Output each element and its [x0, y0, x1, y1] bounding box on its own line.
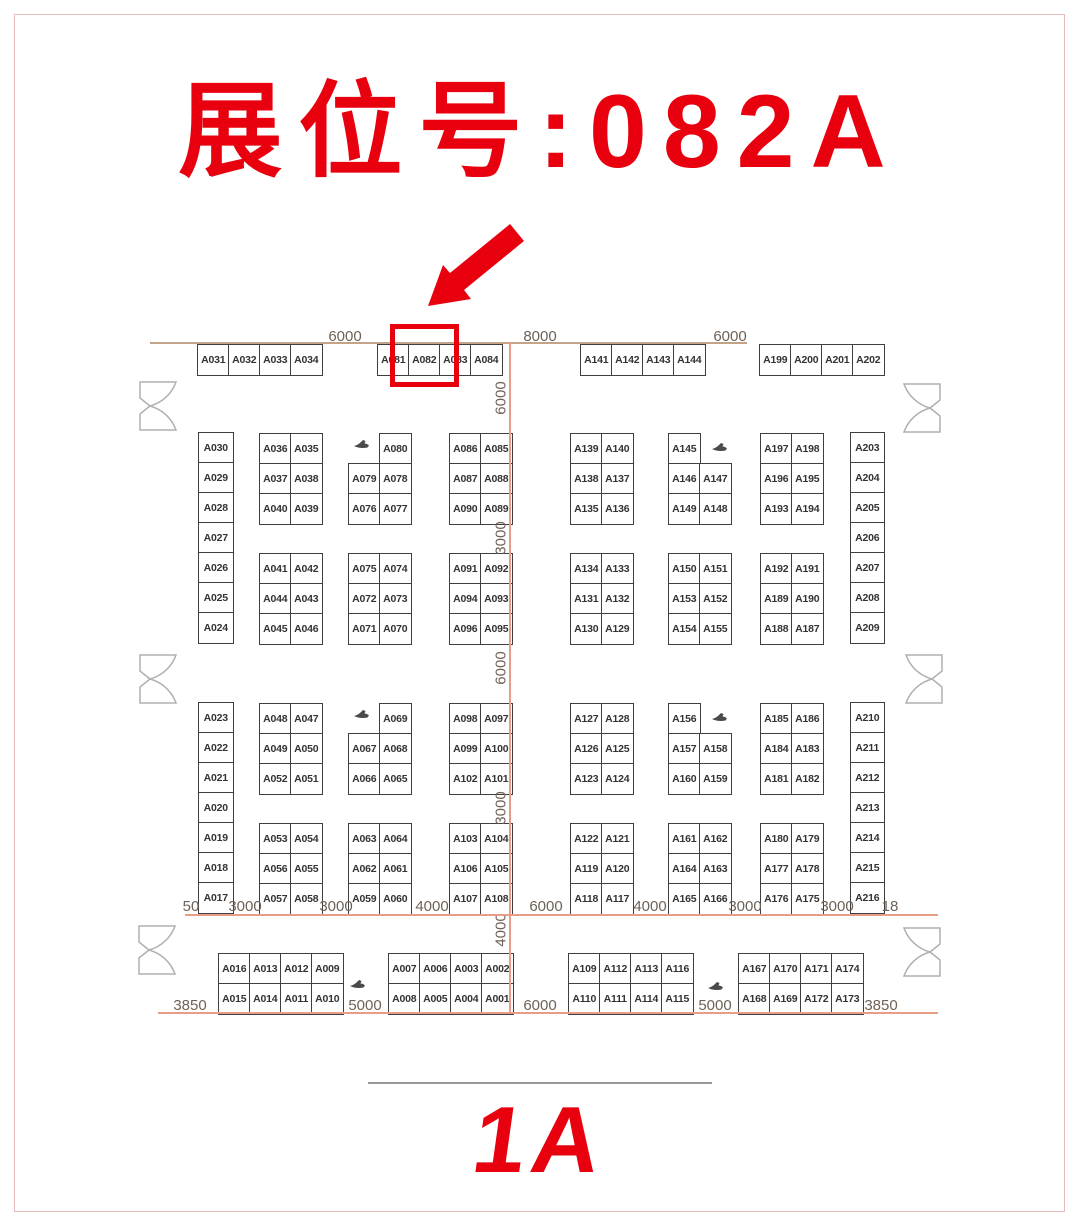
booth-A042: A042 — [290, 553, 323, 585]
car-icon — [707, 981, 724, 991]
booth-A093: A093 — [480, 583, 513, 615]
booth-A012: A012 — [280, 953, 313, 985]
booth-A027: A027 — [198, 522, 234, 554]
booth-A183: A183 — [791, 733, 824, 765]
booth-A110: A110 — [568, 983, 601, 1015]
car-icon — [353, 439, 370, 449]
booth-A191: A191 — [791, 553, 824, 585]
booth-A021: A021 — [198, 762, 234, 794]
booth-A053: A053 — [259, 823, 292, 855]
center-axis-line — [509, 342, 511, 1013]
booth-A105: A105 — [480, 853, 513, 885]
booth-A201: A201 — [821, 344, 854, 376]
booth-A172: A172 — [800, 983, 833, 1015]
booth-A122: A122 — [570, 823, 603, 855]
booth-A159: A159 — [699, 763, 732, 795]
floor-plan: A031A032A033A034A081A082A083A084A141A142… — [0, 0, 1080, 1226]
booth-A188: A188 — [760, 613, 793, 645]
dimension-label-vertical: 6000 — [493, 358, 510, 438]
booth-A193: A193 — [760, 493, 793, 525]
booth-A032: A032 — [228, 344, 261, 376]
booth-A023: A023 — [198, 702, 234, 734]
booth-A216: A216 — [850, 882, 885, 914]
booth-A184: A184 — [760, 733, 793, 765]
booth-A037: A037 — [259, 463, 292, 495]
booth-A190: A190 — [791, 583, 824, 615]
booth-A144: A144 — [673, 344, 706, 376]
booth-A009: A009 — [311, 953, 344, 985]
booth-A207: A207 — [850, 552, 885, 584]
booth-A087: A087 — [449, 463, 482, 495]
booth-A165: A165 — [668, 883, 701, 915]
booth-A168: A168 — [738, 983, 771, 1015]
booth-A206: A206 — [850, 522, 885, 554]
exhibition-floor-plan-page: 展位号:082A A031A032A033A034A081A082A083A08… — [0, 0, 1080, 1226]
booth-A115: A115 — [661, 983, 694, 1015]
dimension-label-vertical: 4000 — [493, 890, 510, 970]
booth-A148: A148 — [699, 493, 732, 525]
booth-A008: A008 — [388, 983, 421, 1015]
booth-A164: A164 — [668, 853, 701, 885]
booth-A010: A010 — [311, 983, 344, 1015]
booth-A208: A208 — [850, 582, 885, 614]
booth-A175: A175 — [791, 883, 824, 915]
booth-A077: A077 — [379, 493, 412, 525]
booth-A013: A013 — [249, 953, 282, 985]
dimension-label: 18 — [882, 898, 899, 915]
booth-A060: A060 — [379, 883, 412, 915]
booth-A185: A185 — [760, 703, 793, 735]
booth-A137: A137 — [601, 463, 634, 495]
booth-A128: A128 — [601, 703, 634, 735]
door-icon — [136, 381, 178, 431]
booth-A147: A147 — [699, 463, 732, 495]
booth-A107: A107 — [449, 883, 482, 915]
booth-A124: A124 — [601, 763, 634, 795]
booth-A146: A146 — [668, 463, 701, 495]
booth-A161: A161 — [668, 823, 701, 855]
dimension-label-vertical: 6000 — [493, 628, 510, 708]
booth-A035: A035 — [290, 433, 323, 465]
booth-A025: A025 — [198, 582, 234, 614]
booth-A166: A166 — [699, 883, 732, 915]
hall-name-text: 1A — [466, 1086, 613, 1194]
booth-A195: A195 — [791, 463, 824, 495]
booth-A126: A126 — [570, 733, 603, 765]
booth-A022: A022 — [198, 732, 234, 764]
booth-A018: A018 — [198, 852, 234, 884]
booth-A119: A119 — [570, 853, 603, 885]
booth-A076: A076 — [348, 493, 381, 525]
booth-A198: A198 — [791, 433, 824, 465]
booth-A005: A005 — [419, 983, 452, 1015]
booth-A049: A049 — [259, 733, 292, 765]
booth-A189: A189 — [760, 583, 793, 615]
booth-A061: A061 — [379, 853, 412, 885]
booth-A123: A123 — [570, 763, 603, 795]
booth-A036: A036 — [259, 433, 292, 465]
booth-A134: A134 — [570, 553, 603, 585]
booth-A205: A205 — [850, 492, 885, 524]
booth-A033: A033 — [259, 344, 292, 376]
booth-A180: A180 — [760, 823, 793, 855]
booth-A196: A196 — [760, 463, 793, 495]
booth-A059: A059 — [348, 883, 381, 915]
booth-A094: A094 — [449, 583, 482, 615]
booth-A138: A138 — [570, 463, 603, 495]
hall-name-underline — [368, 1082, 712, 1084]
booth-A135: A135 — [570, 493, 603, 525]
booth-A121: A121 — [601, 823, 634, 855]
booth-A064: A064 — [379, 823, 412, 855]
booth-A058: A058 — [290, 883, 323, 915]
booth-A192: A192 — [760, 553, 793, 585]
booth-A167: A167 — [738, 953, 771, 985]
booth-A045: A045 — [259, 613, 292, 645]
booth-A070: A070 — [379, 613, 412, 645]
booth-A109: A109 — [568, 953, 601, 985]
booth-A202: A202 — [852, 344, 885, 376]
booth-A065: A065 — [379, 763, 412, 795]
booth-A171: A171 — [800, 953, 833, 985]
booth-A111: A111 — [599, 983, 632, 1015]
booth-A011: A011 — [280, 983, 313, 1015]
booth-A117: A117 — [601, 883, 634, 915]
booth-A015: A015 — [218, 983, 251, 1015]
booth-A197: A197 — [760, 433, 793, 465]
car-icon — [353, 709, 370, 719]
booth-A131: A131 — [570, 583, 603, 615]
booth-A181: A181 — [760, 763, 793, 795]
booth-A034: A034 — [290, 344, 323, 376]
booth-A088: A088 — [480, 463, 513, 495]
dimension-label-vertical: 3000 — [493, 498, 510, 578]
booth-A143: A143 — [642, 344, 675, 376]
booth-A026: A026 — [198, 552, 234, 584]
booth-A099: A099 — [449, 733, 482, 765]
car-icon — [349, 979, 366, 989]
booth-A068: A068 — [379, 733, 412, 765]
booth-A154: A154 — [668, 613, 701, 645]
dimension-label: 3000 — [228, 898, 261, 915]
booth-A006: A006 — [419, 953, 452, 985]
booth-A150: A150 — [668, 553, 701, 585]
booth-A199: A199 — [759, 344, 792, 376]
booth-A071: A071 — [348, 613, 381, 645]
booth-A046: A046 — [290, 613, 323, 645]
booth-A170: A170 — [769, 953, 802, 985]
booth-A156: A156 — [668, 703, 701, 735]
dimension-label: 4000 — [633, 898, 666, 915]
booth-A174: A174 — [831, 953, 864, 985]
booth-A044: A044 — [259, 583, 292, 615]
booth-A177: A177 — [760, 853, 793, 885]
booth-A133: A133 — [601, 553, 634, 585]
booth-A079: A079 — [348, 463, 381, 495]
booth-A157: A157 — [668, 733, 701, 765]
booth-A014: A014 — [249, 983, 282, 1015]
booth-A055: A055 — [290, 853, 323, 885]
booth-A141: A141 — [580, 344, 613, 376]
booth-A142: A142 — [611, 344, 644, 376]
booth-A038: A038 — [290, 463, 323, 495]
booth-A194: A194 — [791, 493, 824, 525]
booth-A063: A063 — [348, 823, 381, 855]
booth-A173: A173 — [831, 983, 864, 1015]
booth-A090: A090 — [449, 493, 482, 525]
booth-A051: A051 — [290, 763, 323, 795]
booth-A209: A209 — [850, 612, 885, 644]
booth-A007: A007 — [388, 953, 421, 985]
booth-A019: A019 — [198, 822, 234, 854]
booth-A160: A160 — [668, 763, 701, 795]
booth-A178: A178 — [791, 853, 824, 885]
booth-A125: A125 — [601, 733, 634, 765]
booth-A214: A214 — [850, 822, 885, 854]
booth-A003: A003 — [450, 953, 483, 985]
booth-A204: A204 — [850, 462, 885, 494]
booth-A114: A114 — [630, 983, 663, 1015]
door-icon — [135, 925, 177, 975]
booth-A043: A043 — [290, 583, 323, 615]
booth-A030: A030 — [198, 432, 234, 464]
booth-A149: A149 — [668, 493, 701, 525]
booth-A158: A158 — [699, 733, 732, 765]
booth-A091: A091 — [449, 553, 482, 585]
booth-A176: A176 — [760, 883, 793, 915]
booth-A102: A102 — [449, 763, 482, 795]
booth-A096: A096 — [449, 613, 482, 645]
booth-A130: A130 — [570, 613, 603, 645]
booth-A067: A067 — [348, 733, 381, 765]
booth-A106: A106 — [449, 853, 482, 885]
dimension-label: 50 — [183, 898, 200, 915]
booth-A116: A116 — [661, 953, 694, 985]
booth-A152: A152 — [699, 583, 732, 615]
booth-A140: A140 — [601, 433, 634, 465]
booth-A213: A213 — [850, 792, 885, 824]
car-icon — [711, 442, 728, 452]
door-icon — [902, 383, 944, 433]
dimension-label: 3000 — [319, 898, 352, 915]
hall-name: 1A — [0, 1086, 1080, 1194]
booth-A153: A153 — [668, 583, 701, 615]
booth-A086: A086 — [449, 433, 482, 465]
door-icon — [136, 654, 178, 704]
dimension-label-vertical: 3000 — [493, 768, 510, 848]
booth-A163: A163 — [699, 853, 732, 885]
booth-A211: A211 — [850, 732, 885, 764]
booth-A020: A020 — [198, 792, 234, 824]
booth-A028: A028 — [198, 492, 234, 524]
mid-dimension-line — [185, 914, 938, 916]
booth-A200: A200 — [790, 344, 823, 376]
car-icon — [711, 712, 728, 722]
booth-A056: A056 — [259, 853, 292, 885]
booth-A136: A136 — [601, 493, 634, 525]
booth-A048: A048 — [259, 703, 292, 735]
booth-A113: A113 — [630, 953, 663, 985]
booth-A151: A151 — [699, 553, 732, 585]
booth-A016: A016 — [218, 953, 251, 985]
dimension-label: 4000 — [415, 898, 448, 915]
booth-A120: A120 — [601, 853, 634, 885]
booth-A127: A127 — [570, 703, 603, 735]
booth-A215: A215 — [850, 852, 885, 884]
booth-A075: A075 — [348, 553, 381, 585]
booth-A047: A047 — [290, 703, 323, 735]
booth-A132: A132 — [601, 583, 634, 615]
highlight-arrow-icon — [400, 220, 530, 320]
booth-A074: A074 — [379, 553, 412, 585]
booth-A050: A050 — [290, 733, 323, 765]
booth-A112: A112 — [599, 953, 632, 985]
booth-A145: A145 — [668, 433, 701, 465]
booth-A100: A100 — [480, 733, 513, 765]
booth-A080: A080 — [379, 433, 412, 465]
booth-A187: A187 — [791, 613, 824, 645]
booth-A041: A041 — [259, 553, 292, 585]
booth-A162: A162 — [699, 823, 732, 855]
booth-highlight-box — [390, 324, 459, 387]
booth-A103: A103 — [449, 823, 482, 855]
booth-A066: A066 — [348, 763, 381, 795]
booth-A052: A052 — [259, 763, 292, 795]
booth-A203: A203 — [850, 432, 885, 464]
door-icon — [904, 654, 946, 704]
booth-A169: A169 — [769, 983, 802, 1015]
door-icon — [902, 927, 944, 977]
booth-A186: A186 — [791, 703, 824, 735]
booth-A031: A031 — [197, 344, 230, 376]
booth-A212: A212 — [850, 762, 885, 794]
booth-A182: A182 — [791, 763, 824, 795]
dimension-label: 6000 — [529, 898, 562, 915]
booth-A072: A072 — [348, 583, 381, 615]
booth-A155: A155 — [699, 613, 732, 645]
dimension-label: 3000 — [728, 898, 761, 915]
dimension-label: 3000 — [820, 898, 853, 915]
booth-A129: A129 — [601, 613, 634, 645]
booth-A210: A210 — [850, 702, 885, 734]
booth-A118: A118 — [570, 883, 603, 915]
booth-A098: A098 — [449, 703, 482, 735]
booth-A024: A024 — [198, 612, 234, 644]
booth-A040: A040 — [259, 493, 292, 525]
booth-A004: A004 — [450, 983, 483, 1015]
booth-A179: A179 — [791, 823, 824, 855]
booth-A039: A039 — [290, 493, 323, 525]
booth-A062: A062 — [348, 853, 381, 885]
booth-A073: A073 — [379, 583, 412, 615]
booth-A054: A054 — [290, 823, 323, 855]
booth-A029: A029 — [198, 462, 234, 494]
booth-A057: A057 — [259, 883, 292, 915]
booth-A069: A069 — [379, 703, 412, 735]
booth-A139: A139 — [570, 433, 603, 465]
booth-A078: A078 — [379, 463, 412, 495]
bottom-dimension-line — [158, 1012, 938, 1014]
